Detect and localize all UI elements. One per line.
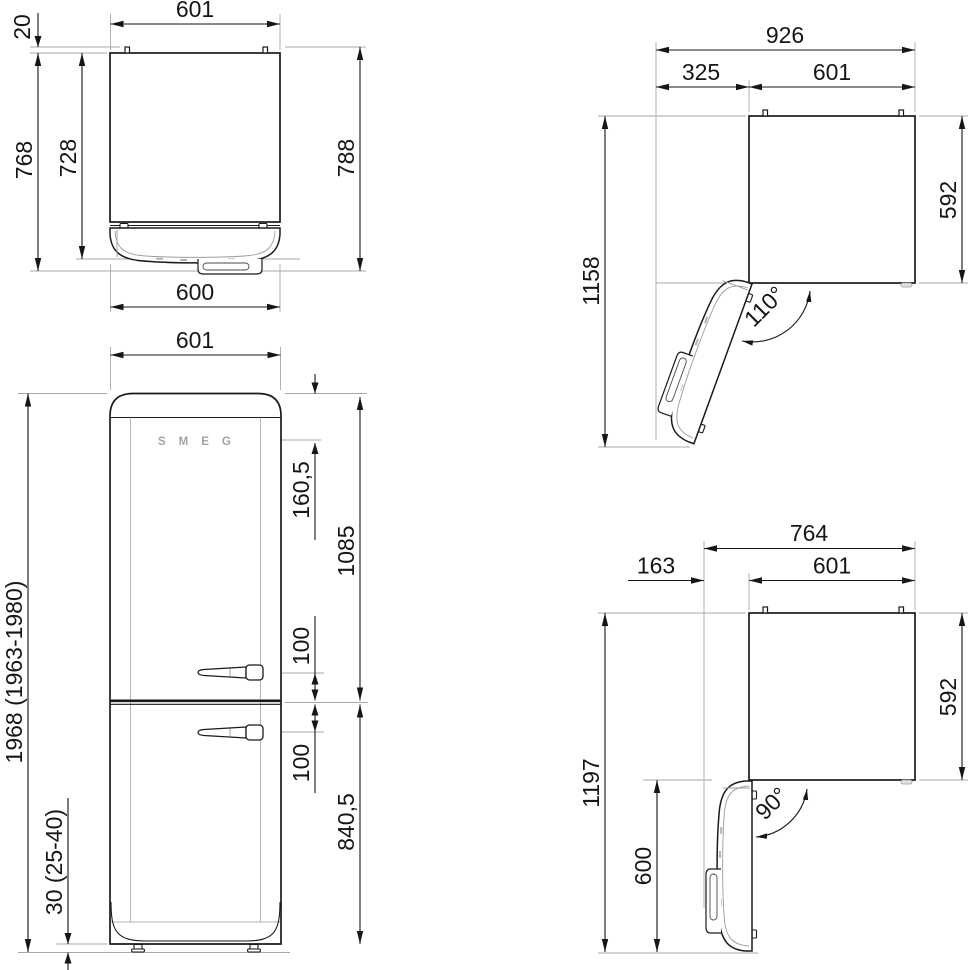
cabinet-top-view bbox=[110, 53, 280, 222]
dim-logo-from-top: 160,5 bbox=[288, 374, 319, 540]
drawing-canvas: 601 20 768 728 788 600 bbox=[0, 0, 970, 970]
foot-right bbox=[248, 945, 261, 953]
hinge-pin-right bbox=[899, 607, 904, 613]
dim-clearance: 163 bbox=[628, 553, 704, 581]
hinge-pin-left bbox=[763, 110, 768, 116]
dim-total-depth-label: 1197 bbox=[578, 758, 604, 807]
dim-total-height: 1968 (1963-1980) bbox=[1, 394, 28, 953]
dim-width-label: 601 bbox=[176, 327, 214, 353]
dim-door-length-label: 600 bbox=[630, 847, 656, 885]
dim-depth-with-door: 768 bbox=[11, 53, 38, 271]
dim-depth-cabinet: 728 bbox=[55, 53, 82, 259]
dim-depth-cabinet-label: 728 bbox=[55, 139, 81, 177]
dim-width: 601 bbox=[111, 327, 281, 355]
view-top-closed: 601 20 768 728 788 600 bbox=[9, 0, 366, 312]
foot-left bbox=[132, 945, 145, 953]
dim-total-width-label: 926 bbox=[766, 22, 804, 48]
dim-width-label: 601 bbox=[813, 59, 851, 85]
dim-total-depth: 1158 bbox=[578, 116, 605, 447]
dim-clearance-label: 163 bbox=[637, 553, 675, 579]
hinge-pin-right bbox=[263, 47, 268, 53]
dim-upper-door-height-label: 1085 bbox=[333, 525, 359, 576]
dim-depth-with-door-label: 768 bbox=[11, 141, 37, 179]
dim-clearance: 325 bbox=[656, 59, 749, 87]
dim-hinge-offset-label: 20 bbox=[9, 14, 35, 40]
dim-total-height-label: 1968 (1963-1980) bbox=[1, 581, 27, 764]
dim-width-top-label: 601 bbox=[176, 0, 214, 22]
view-open-110: 110° 926 325 601 592 1158 bbox=[578, 22, 968, 447]
dim-door-width: 600 bbox=[111, 279, 281, 307]
dim-depth-total-label: 788 bbox=[333, 139, 359, 177]
door-closed bbox=[110, 224, 280, 275]
hinge-pin-right bbox=[899, 110, 904, 116]
dim-lower-door-height: 840,5 bbox=[333, 705, 360, 945]
view-open-90: 90° 764 163 601 592 1197 600 bbox=[578, 520, 968, 953]
dim-handle-gap-upper: 100 bbox=[288, 616, 319, 701]
door-open-110 bbox=[651, 268, 757, 445]
dim-width-top: 601 bbox=[111, 0, 281, 24]
dim-depth-total: 788 bbox=[333, 47, 360, 271]
dim-total-width: 764 bbox=[704, 520, 915, 549]
dim-depth: 592 bbox=[935, 613, 962, 780]
hinge-tab bbox=[901, 780, 912, 784]
dim-depth-label: 592 bbox=[935, 678, 961, 716]
dim-handle-gap-upper-label: 100 bbox=[288, 627, 314, 665]
dim-door-width-label: 600 bbox=[176, 279, 214, 305]
dim-upper-door-height: 1085 bbox=[333, 397, 360, 701]
dim-clearance-label: 325 bbox=[682, 59, 720, 85]
dim-total-depth-label: 1158 bbox=[578, 256, 604, 305]
dim-door-length: 600 bbox=[630, 780, 657, 952]
cabinet-top-view bbox=[749, 613, 915, 780]
dim-hinge-offset: 20 bbox=[9, 13, 42, 47]
dim-total-depth: 1197 bbox=[578, 613, 605, 952]
dim-lower-door-height-label: 840,5 bbox=[333, 793, 359, 851]
cabinet-top-view bbox=[749, 116, 915, 283]
dim-logo-from-top-label: 160,5 bbox=[288, 461, 314, 519]
dim-handle-gap-lower: 100 bbox=[288, 705, 319, 794]
dim-total-width-label: 764 bbox=[790, 520, 829, 546]
view-front: SMEG 601 1968 (1963-1980) bbox=[1, 327, 368, 970]
dimension-diagram: 601 20 768 728 788 600 bbox=[0, 0, 970, 970]
dim-width: 601 bbox=[749, 59, 915, 87]
dim-handle-gap-lower-label: 100 bbox=[288, 744, 314, 782]
dim-total-width: 926 bbox=[656, 22, 915, 50]
brand-logo: SMEG bbox=[158, 436, 244, 448]
dim-depth: 592 bbox=[935, 116, 962, 283]
hinge-tab bbox=[901, 283, 912, 287]
dim-depth-label: 592 bbox=[935, 181, 961, 219]
dim-feet-height-label: 30 (25-40) bbox=[41, 809, 67, 915]
dim-width-label: 601 bbox=[813, 553, 851, 579]
hinge-pin-left bbox=[125, 47, 130, 53]
door-angle-label: 90° bbox=[750, 782, 793, 825]
hinge-pin-left bbox=[763, 607, 768, 613]
dim-width: 601 bbox=[749, 553, 915, 581]
